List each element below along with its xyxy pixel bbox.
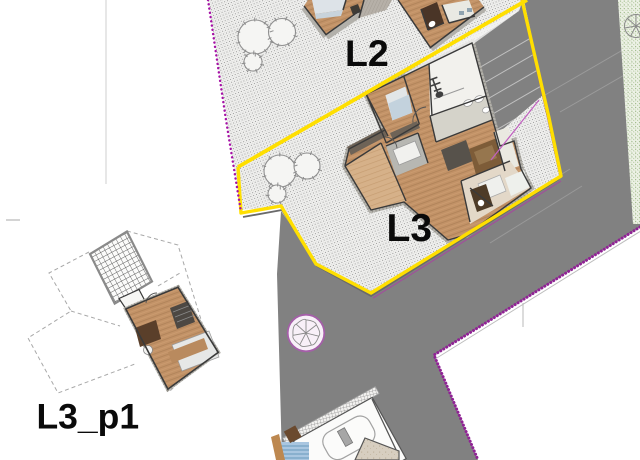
svg-text:L3: L3 [387, 207, 433, 250]
svg-text:L3_p1: L3_p1 [37, 397, 140, 437]
svg-text:L2: L2 [345, 32, 389, 74]
